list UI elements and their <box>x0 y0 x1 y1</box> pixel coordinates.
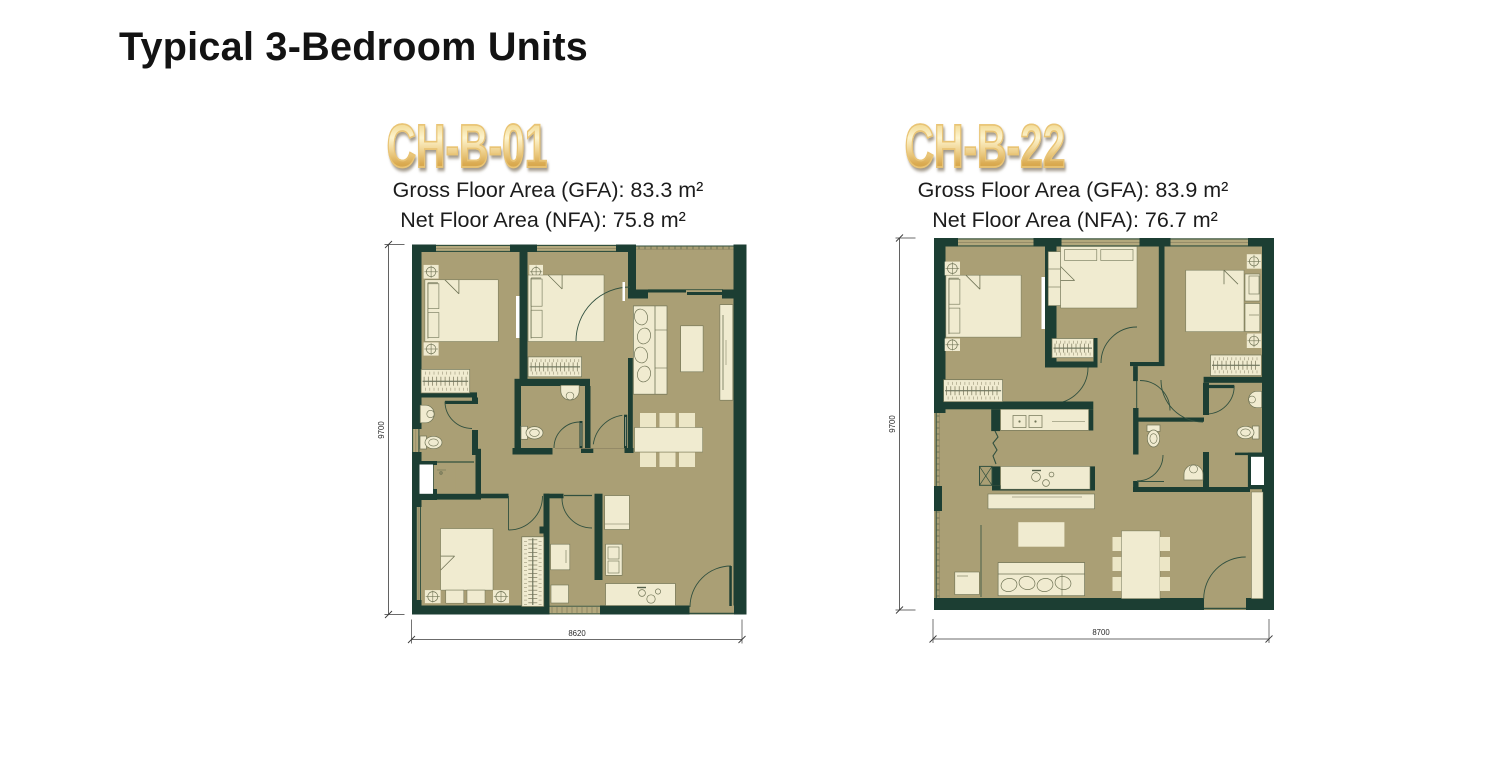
svg-text:8700: 8700 <box>1092 628 1110 637</box>
svg-text:9700: 9700 <box>888 415 897 433</box>
svg-text:9700: 9700 <box>377 421 386 439</box>
svg-text:8620: 8620 <box>568 629 586 638</box>
